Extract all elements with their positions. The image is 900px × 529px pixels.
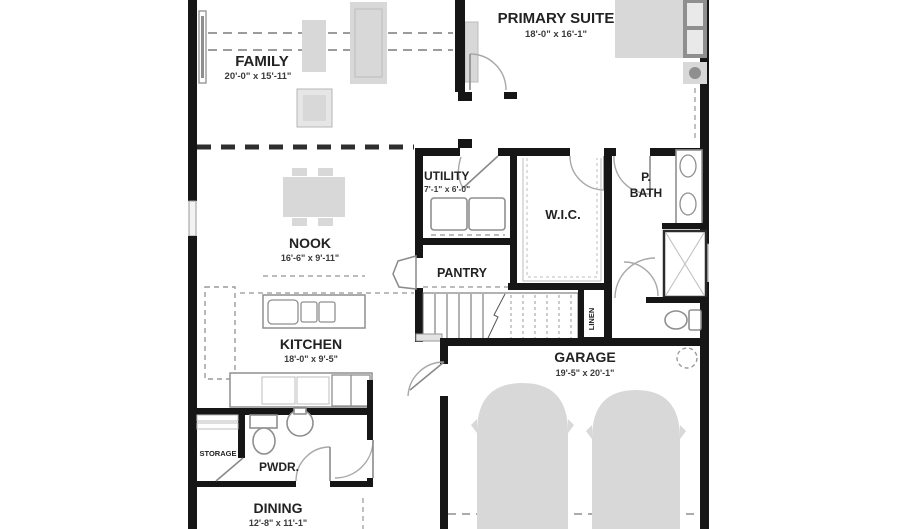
nook-label: NOOK <box>289 235 331 251</box>
pantry-door <box>393 256 416 289</box>
toilet <box>253 428 275 454</box>
chair <box>292 218 307 226</box>
kitchen-dims: 18'-0" x 9'-5" <box>284 354 338 364</box>
room-pantry: PANTRY <box>393 256 608 290</box>
room-primary-suite: PRIMARY SUITE 18'-0" x 16'-1" <box>465 0 707 140</box>
dining-label: DINING <box>254 500 303 516</box>
utility-dims: 7'-1" x 6'-0" <box>424 184 470 194</box>
pbath-label-1: P. <box>641 170 651 184</box>
washer <box>431 198 467 230</box>
floor-plan-drawing: FAMILY 20'-0" x 15'-11" PRIMARY SUITE 18… <box>0 0 900 529</box>
counter-left <box>205 287 235 379</box>
garage-label: GARAGE <box>554 349 615 365</box>
sofa <box>350 2 387 84</box>
room-nook: NOOK 16'-6" x 9'-11" <box>281 168 345 263</box>
nook-table <box>283 177 345 217</box>
powder-label: PWDR. <box>259 460 299 474</box>
toilet <box>665 311 687 329</box>
lamp-icon <box>689 67 701 79</box>
room-garage: GARAGE 19'-5" x 20'-1" <box>408 338 708 529</box>
storage-door <box>216 458 243 481</box>
car <box>477 383 568 529</box>
toilet-tank <box>250 415 277 428</box>
stairs <box>416 293 578 341</box>
room-storage: STORAGE <box>197 408 245 481</box>
car <box>592 390 680 529</box>
water-heater-icon <box>677 348 697 368</box>
storage-label: STORAGE <box>200 449 237 458</box>
chair <box>292 168 307 176</box>
room-kitchen: KITCHEN 18'-0" x 9'-5" <box>205 276 414 407</box>
room-dining: DINING 12'-8" x 11'-1" <box>249 498 363 529</box>
room-powder: PWDR. <box>250 408 313 474</box>
chair <box>318 218 333 226</box>
garage-dims: 19'-5" x 20'-1" <box>556 368 615 378</box>
bed <box>615 0 683 58</box>
utility-label: UTILITY <box>424 169 469 183</box>
family-dims: 20'-0" x 15'-11" <box>225 71 292 82</box>
room-primary-bath: P. BATH <box>615 150 708 330</box>
dresser <box>465 22 478 82</box>
room-family: FAMILY 20'-0" x 15'-11" <box>197 2 453 147</box>
pbath-label-2: BATH <box>630 186 662 200</box>
nook-dims: 16'-6" x 9'-11" <box>281 253 339 263</box>
stair-landing <box>416 334 442 341</box>
faucet-icon <box>294 408 306 414</box>
pantry-label: PANTRY <box>437 266 488 280</box>
family-label: FAMILY <box>235 53 289 70</box>
kitchen-label: KITCHEN <box>280 336 342 352</box>
floor-plan: FAMILY 20'-0" x 15'-11" PRIMARY SUITE 18… <box>0 0 900 529</box>
primary-suite-dims: 18'-0" x 16'-1" <box>525 29 587 40</box>
primary-suite-label: PRIMARY SUITE <box>498 10 615 27</box>
powder-door <box>296 447 330 481</box>
linen-label: LINEN <box>587 308 596 331</box>
dryer <box>469 198 505 230</box>
sofa-chair <box>302 20 326 72</box>
window-left <box>189 201 196 236</box>
chair <box>318 168 333 176</box>
dining-dims: 12'-8" x 11'-1" <box>249 518 307 528</box>
wic-label: W.I.C. <box>545 207 580 222</box>
entry-door <box>335 440 373 478</box>
